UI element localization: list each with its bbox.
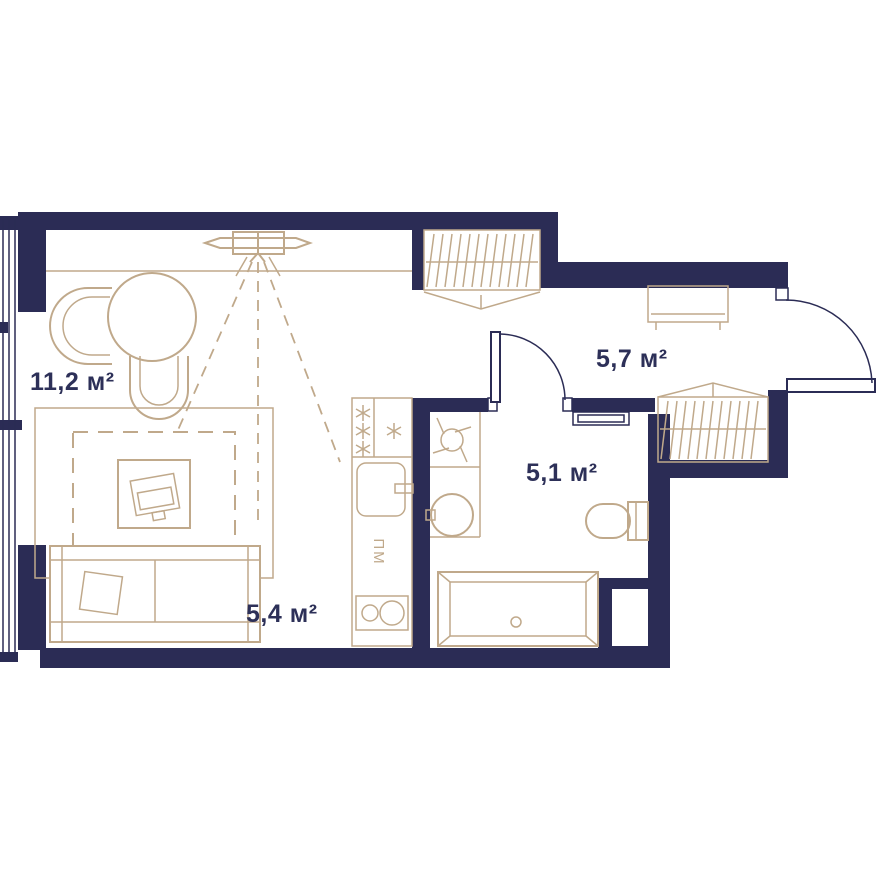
wall-pier-bottom-left [18,545,46,650]
dishwasher-label: ПМ [370,538,387,565]
chair-inner [140,356,178,405]
bathtub [438,572,598,646]
wall-bathroom-top-left [412,398,488,412]
console-top [648,286,728,322]
door-swing-arc [786,300,872,383]
kitchen-area-label: 5,4 м² [246,600,318,628]
coffee-table [118,460,190,528]
door-leaf [491,332,500,402]
window-left [0,218,18,660]
burner-small [362,605,378,621]
window-glazing-lines [0,218,18,660]
wall-pier-top-left [18,212,46,312]
washer-drum [441,429,463,451]
wall-living-hall-connector [540,212,558,288]
coffee-table-laptop [118,460,190,528]
wall-tv [178,232,340,522]
fridge [352,398,412,457]
wardrobe-hatch [660,401,766,459]
wardrobe-hallway [658,383,768,462]
burner-large [380,601,404,625]
tub-drain [511,617,521,627]
wardrobe-hatch [426,234,538,287]
sofa [50,546,260,642]
wall-niche [612,589,648,646]
tub-bevels [438,572,598,646]
door-leaf [787,379,875,392]
hallway: 5,7 м² [596,286,875,462]
threshold [573,412,629,425]
washbasin [426,494,473,536]
wall-hallway-top [558,262,788,288]
toilet-bowl [586,504,630,538]
bathroom-area-label: 5,1 м² [526,459,598,487]
wall-bathroom-right [648,414,670,668]
dining-table [108,273,196,361]
wall-kitchen-bath-divider [412,398,430,648]
wardrobe-living [424,230,540,309]
door-jamb-top [776,288,788,300]
tub-outer [438,572,598,646]
entrance-door [776,288,875,392]
hallway-area-label: 5,7 м² [596,345,668,373]
wall-facade-tick [0,322,8,333]
sink-bowl [357,463,405,516]
wall-top [18,212,558,230]
chair-outline [130,356,188,419]
threshold-inner [578,415,624,422]
living-area-label: 11,2 м² [30,368,115,396]
wall-bottom [40,648,670,668]
tv-cone-dashed [178,262,340,522]
wardrobe-doors [424,292,540,309]
console-table [648,286,728,330]
door-swing-arc [500,334,565,400]
floor-plan-page: 11,2 м² ПМ 5,4 м² [0,0,880,880]
chair-inner [63,297,110,355]
sink-faucet [395,484,413,493]
bathroom-door [488,332,572,411]
washing-machine [433,418,471,462]
living-room: 11,2 м² [30,232,412,642]
toilet [586,502,648,540]
wall-wardrobe-niche-stub [412,212,424,290]
basin-bowl [431,494,473,536]
washer-pinwheel [433,418,471,462]
chair-bottom [130,356,188,419]
chair-left [50,288,112,364]
cooktop-frame [356,596,408,630]
freezer-star-icons [356,405,401,457]
kitchen-sink [357,463,413,516]
wardrobe-doors [658,383,768,397]
kitchen: ПМ 5,4 м² [246,398,413,646]
tub-inner [450,582,586,636]
floor-plan-svg: 11,2 м² ПМ 5,4 м² [0,0,880,880]
cooktop [356,596,408,630]
wall-bathroom-top-right [572,398,655,412]
